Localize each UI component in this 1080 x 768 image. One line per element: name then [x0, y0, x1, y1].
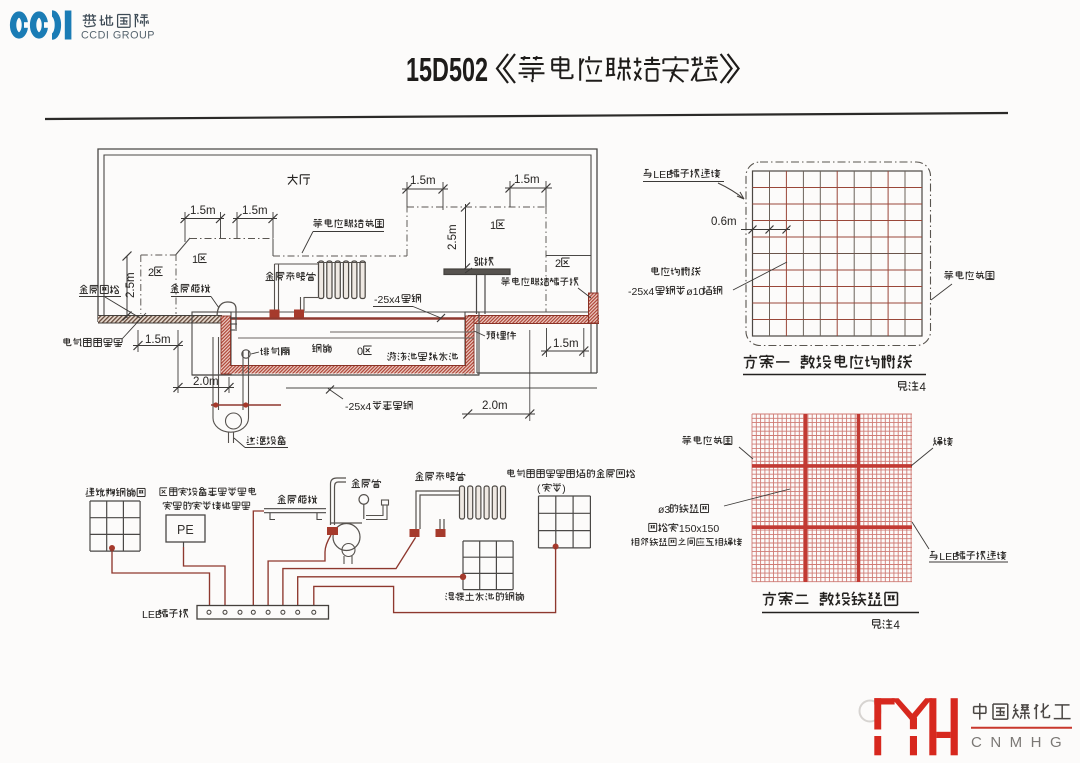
svg-text:1.5m: 1.5m	[514, 174, 540, 186]
svg-text:CNMHG: CNMHG	[971, 734, 1070, 751]
svg-text:): )	[562, 484, 565, 495]
svg-text:2.0m: 2.0m	[193, 376, 219, 388]
svg-text:ø3: ø3	[658, 504, 670, 516]
svg-text:1.5m: 1.5m	[553, 338, 579, 350]
svg-text:1: 1	[192, 254, 198, 266]
svg-text:1: 1	[490, 220, 496, 232]
svg-text:2.5m: 2.5m	[447, 224, 459, 250]
svg-text:4: 4	[894, 620, 901, 632]
svg-text:1.5m: 1.5m	[190, 205, 216, 217]
svg-text:CCDI GROUP: CCDI GROUP	[81, 30, 155, 42]
svg-text:1.5m: 1.5m	[145, 334, 171, 346]
svg-text:1.5m: 1.5m	[410, 175, 436, 187]
svg-text:2.5m: 2.5m	[125, 272, 137, 298]
svg-text:2: 2	[148, 267, 154, 279]
svg-text:150x150: 150x150	[679, 523, 719, 535]
svg-text:4: 4	[920, 382, 927, 394]
svg-text:-25x4: -25x4	[374, 294, 400, 306]
svg-text:2.0m: 2.0m	[482, 400, 508, 412]
svg-text:1.5m: 1.5m	[242, 205, 268, 217]
svg-text:15D502: 15D502	[406, 51, 488, 88]
svg-text:-25x4: -25x4	[628, 286, 654, 298]
svg-text:0: 0	[357, 346, 363, 358]
svg-text:2: 2	[555, 258, 561, 270]
svg-text:PE: PE	[177, 523, 194, 537]
svg-text:0.6m: 0.6m	[711, 216, 737, 228]
svg-text:-25x4: -25x4	[345, 401, 371, 413]
svg-text:(: (	[537, 484, 541, 495]
svg-text:ø10: ø10	[686, 286, 704, 298]
